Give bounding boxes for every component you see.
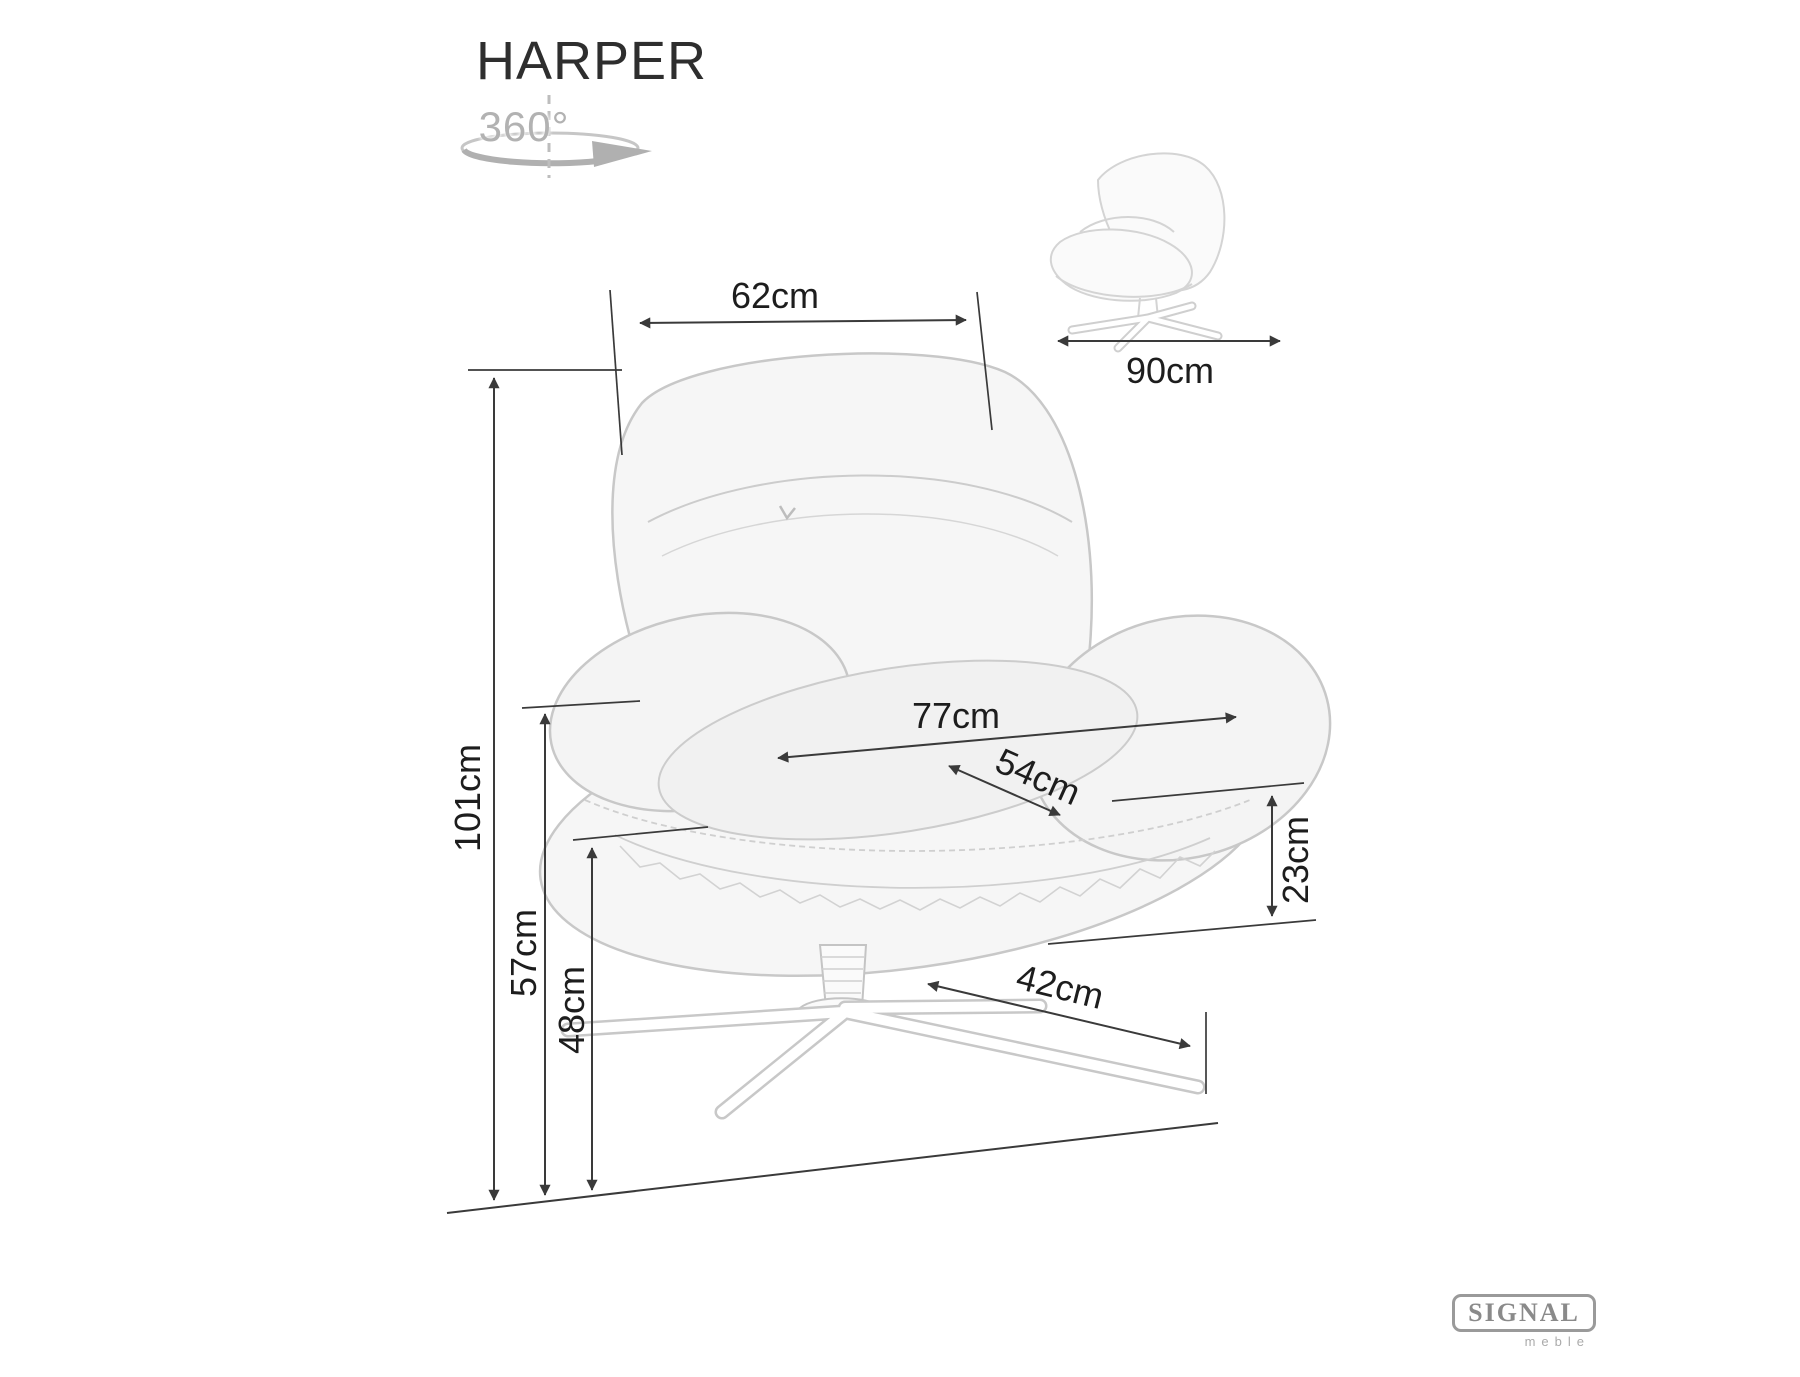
dim-cushion-height-label: 23cm <box>1278 816 1314 904</box>
brand-logo-box: SIGNAL <box>1452 1294 1596 1332</box>
dim-armrest-height-label: 57cm <box>506 909 542 997</box>
dim-backrest-width-label: 62cm <box>731 278 819 314</box>
dim-side-depth-label: 90cm <box>1126 353 1214 389</box>
brand-logo-subtext: meble <box>1452 1334 1590 1349</box>
chair-side-sketch <box>1051 153 1225 348</box>
brand-logo: SIGNAL meble <box>1452 1294 1602 1349</box>
dim-total-height-label: 101cm <box>450 744 486 852</box>
chair-technical-drawing <box>0 0 1800 1377</box>
rotation-360-label: 360° <box>479 103 570 151</box>
page-title: HARPER <box>476 30 707 92</box>
brand-logo-text: SIGNAL <box>1468 1298 1580 1328</box>
dimension-drawing-page: HARPER 360° 62cm 90cm 101cm 57cm 48cm 77… <box>0 0 1800 1377</box>
dim-seat-height-label: 48cm <box>554 966 590 1054</box>
dim-outer-seat-width-label: 77cm <box>912 698 1000 734</box>
